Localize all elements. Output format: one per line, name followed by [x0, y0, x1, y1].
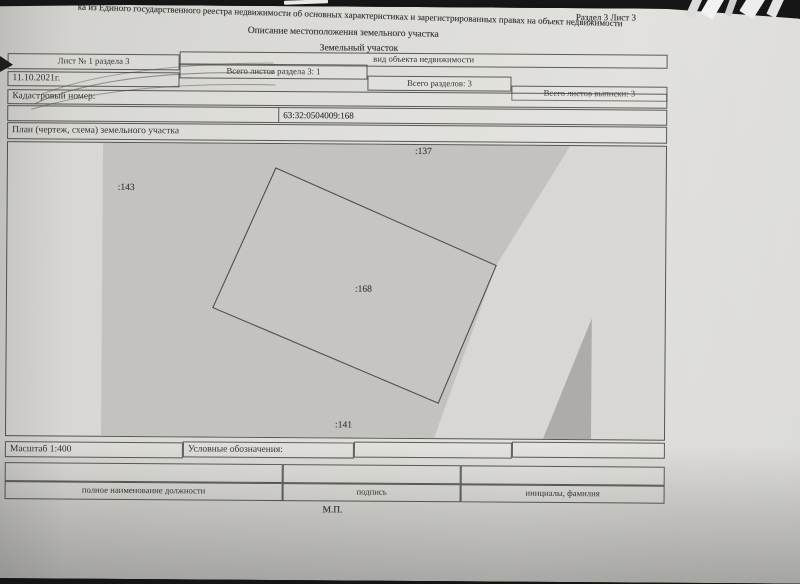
legend-cell: Условные обозначения: — [183, 441, 354, 458]
position-label-cell: полное наименование должности — [5, 481, 283, 501]
signature-empty-cell-sign — [283, 464, 461, 484]
initials-label: инициалы, фамилия — [525, 489, 599, 499]
total-sections-cell: Всего разделов: 3 — [367, 76, 511, 92]
legend-empty-cell-2 — [512, 442, 665, 459]
legend-empty-cell-1 — [354, 442, 512, 459]
signature-label-cell: подпись — [283, 483, 461, 502]
signature-label: подпись — [356, 488, 386, 498]
cadastral-divider — [278, 108, 279, 122]
legend-label: Условные обозначения: — [188, 444, 283, 455]
cadastral-number: 63:32:0504009:168 — [283, 111, 354, 121]
plan-drawing — [6, 142, 668, 442]
paper-fold-lines — [27, 59, 277, 113]
plan-map: :137 :143 :168 :141 — [5, 141, 667, 441]
parcel-label-143: :143 — [118, 183, 135, 194]
document-content: ка из Единого государственного реестра н… — [0, 1, 800, 581]
parcel-label-137: :137 — [415, 147, 432, 158]
photo-scene: ка из Единого государственного реестра н… — [0, 0, 800, 563]
parcel-label-141: :141 — [335, 420, 352, 431]
plan-title: План (чертеж, схема) земельного участка — [12, 125, 179, 137]
scale-value: Масштаб 1:400 — [10, 444, 72, 455]
object-kind-caption: вид объекта недвижимости — [373, 55, 474, 65]
initials-label-cell: инициалы, фамилия — [461, 484, 665, 503]
plan-title-row: План (чертеж, схема) земельного участка — [7, 122, 667, 144]
total-sections: Всего разделов: 3 — [407, 79, 472, 89]
position-label: полное наименование должности — [82, 486, 206, 496]
scale-cell: Масштаб 1:400 — [5, 441, 183, 458]
signature-empty-cell-initials — [461, 465, 665, 485]
parcel-label-168: :168 — [355, 285, 372, 296]
document-paper: ка из Единого государственного реестра н… — [0, 4, 800, 584]
section-sheet-label: Раздел 3 Лист 3 — [576, 13, 636, 23]
signature-empty-cell-position — [5, 462, 283, 483]
extract-title-line: ка из Единого государственного реестра н… — [78, 3, 623, 30]
dark-triangle-area — [543, 318, 592, 439]
document-title: Описание местоположения земельного участ… — [248, 26, 439, 40]
stamp-place-label: М.П. — [322, 505, 342, 516]
